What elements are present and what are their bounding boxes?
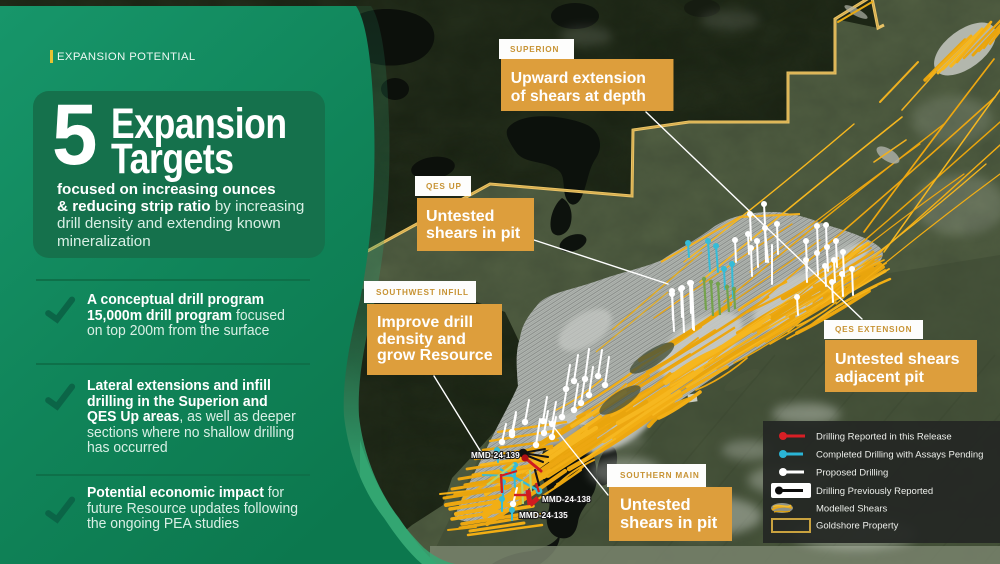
svg-text:MMD-24-135: MMD-24-135 (519, 511, 568, 520)
svg-text:Modelled Shears: Modelled Shears (816, 504, 888, 515)
svg-text:Completed Drilling with Assays: Completed Drilling with Assays Pending (816, 450, 983, 461)
svg-text:Drilling Reported in this Rele: Drilling Reported in this Release (816, 432, 952, 443)
svg-text:Goldshore Property: Goldshore Property (816, 521, 899, 532)
svg-text:MMD-24-138: MMD-24-138 (542, 495, 591, 504)
svg-text:Drilling Previously Reported: Drilling Previously Reported (816, 486, 933, 497)
svg-text:Proposed Drilling: Proposed Drilling (816, 468, 888, 479)
